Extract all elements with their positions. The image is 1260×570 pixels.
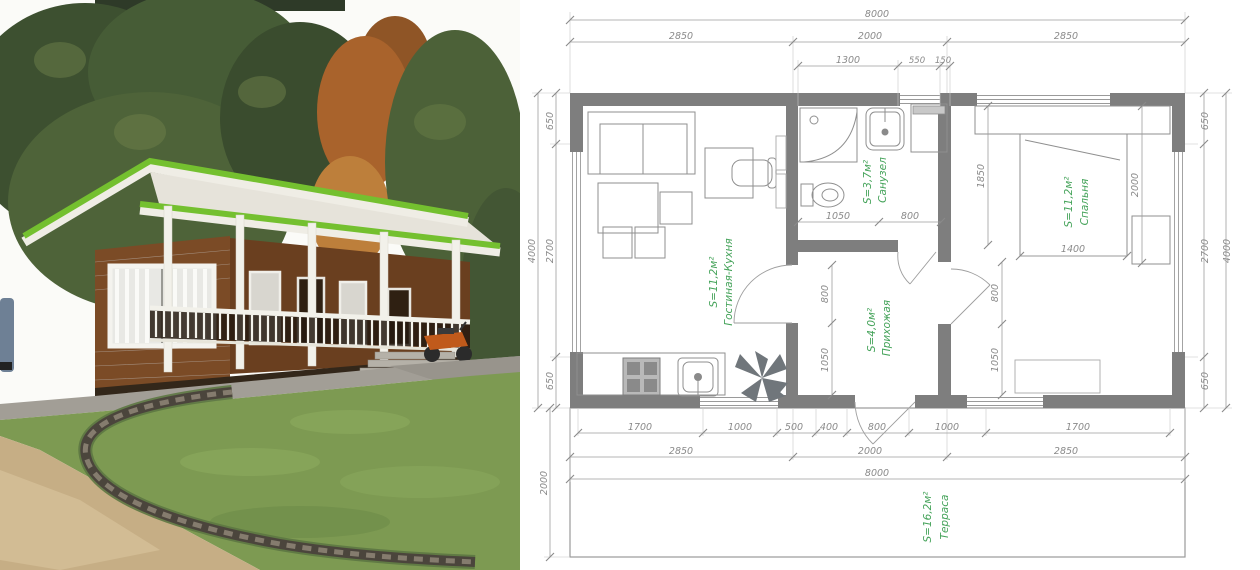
dim-top-detail-1300: 1300 [836, 55, 860, 66]
wall-shelf [776, 174, 786, 208]
window-bedroom-top [977, 96, 1110, 104]
toilet-bowl [812, 183, 844, 207]
room-label-hall-name: Прихожая [881, 300, 893, 356]
window-bottom-right [967, 398, 1043, 406]
room-label-bath-name: Санузел [877, 157, 889, 203]
room-label-bedroom-area: S=11,2м² [1063, 176, 1075, 228]
dim-bot-section-mid: 2000 [858, 446, 882, 457]
bed-headboard [975, 106, 1170, 134]
post [164, 206, 172, 372]
living-room-furniture [588, 112, 786, 258]
door-bath [898, 252, 936, 284]
room-label-terrace-area: S=16,2м² [922, 491, 934, 543]
post [236, 215, 244, 369]
foliage-highlight [34, 42, 86, 78]
room-label-bedroom-name: Спальня [1079, 179, 1091, 226]
room-label-hall-area: S=4,0м² [866, 307, 878, 352]
wheel [456, 346, 472, 362]
dim-terrace-depth: 2000 [539, 471, 550, 495]
dim-left-2700: 2700 [545, 239, 556, 263]
office-chair [732, 160, 772, 186]
window-right [1175, 152, 1183, 352]
plant [735, 351, 788, 402]
dim-right-650-bottom: 650 [1200, 372, 1211, 390]
kitchen-furniture [577, 351, 788, 402]
foliage-highlight [238, 76, 286, 108]
dim-bot-section-right: 2850 [1054, 446, 1078, 457]
dim-bot-1000-r: 1000 [935, 422, 959, 433]
wall-shelf [776, 136, 786, 170]
step [375, 352, 455, 359]
toilet-bowl-inner [822, 189, 838, 201]
toilet-tank [801, 184, 813, 206]
dim-top-section-right: 2850 [1054, 31, 1078, 42]
chair [635, 227, 665, 258]
dim-bot-1700-r: 1700 [1066, 422, 1090, 433]
dim-bot-800: 800 [868, 422, 886, 433]
room-label-bath-area: S=3,7м² [862, 159, 874, 204]
shower [800, 108, 857, 162]
kitchen-faucet [694, 373, 702, 381]
dim-bot-1700-l: 1700 [628, 422, 652, 433]
floor-plan-panel: 8000 2850 2000 2850 1300 550 150 650 270… [520, 0, 1260, 570]
door-living [734, 265, 792, 323]
dim-hall-right-wall: 1050 [990, 348, 1001, 372]
dim-right-2700: 2700 [1200, 239, 1211, 263]
walls [570, 93, 1185, 408]
burner [644, 379, 657, 392]
room-label-living-area: S=11,2м² [708, 256, 720, 308]
burner [627, 379, 640, 392]
parked-car [0, 298, 14, 372]
dim-bot-1000-l: 1000 [728, 422, 752, 433]
dim-left-650-top: 650 [545, 112, 556, 130]
car-body [0, 298, 14, 372]
window-kitchen-bottom [700, 398, 778, 406]
dim-hall-left-door: 800 [820, 285, 831, 303]
screenshot-root: 8000 2850 2000 2850 1300 550 150 650 270… [0, 0, 1260, 570]
blanket-fold [1025, 140, 1120, 160]
grass-highlight [290, 410, 410, 434]
dim-bed-2000: 2000 [1130, 173, 1141, 197]
house-photo-panel [0, 0, 520, 570]
dim-left-650-bottom: 650 [545, 372, 556, 390]
burner [644, 362, 657, 375]
chair [603, 227, 632, 258]
dim-right-650-top: 650 [1200, 112, 1211, 130]
dim-top-detail-150: 150 [935, 56, 951, 66]
side-table [660, 192, 692, 224]
dim-bot-500: 500 [785, 422, 803, 433]
dim-bot-section-left: 2850 [669, 446, 693, 457]
dim-top-total: 8000 [865, 9, 889, 20]
dim-bath-1050: 1050 [826, 211, 850, 222]
window-left [573, 152, 581, 352]
washing-machine-panel [913, 106, 945, 114]
burner [627, 362, 640, 375]
dim-hall-right-door: 800 [990, 284, 1001, 302]
foliage-highlight [114, 114, 166, 150]
dim-bed-1850: 1850 [976, 164, 987, 188]
bike-seat [438, 328, 454, 334]
dim-top-section-mid: 2000 [858, 31, 882, 42]
dim-bath-800: 800 [901, 211, 919, 222]
dim-top-detail-550: 550 [909, 56, 925, 66]
car-wheel [0, 362, 12, 370]
dim-bot-total: 8000 [865, 468, 889, 479]
dim-hall-left-wall: 1050 [820, 348, 831, 372]
table [598, 183, 658, 233]
door-bedroom [951, 269, 990, 324]
room-label-terrace-name: Терраса [939, 495, 951, 540]
shower-curve [804, 112, 857, 162]
grass-highlight [340, 466, 500, 498]
floor-plan: 8000 2850 2000 2850 1300 550 150 650 270… [520, 0, 1260, 570]
dim-right-overall: 4000 [1222, 239, 1233, 263]
dim-left-overall: 4000 [527, 239, 538, 263]
dim-top-section-left: 2850 [669, 31, 693, 42]
room-label-living-name: Гостиная-Кухня [723, 238, 735, 325]
dim-bed-1400: 1400 [1061, 244, 1085, 255]
wardrobe [1015, 360, 1100, 393]
nightstand [1132, 216, 1170, 264]
window-bath-top [900, 96, 940, 104]
house-photo [0, 0, 520, 570]
desk [705, 148, 753, 198]
sofa [588, 112, 695, 174]
dim-bot-400: 400 [820, 422, 838, 433]
foliage-highlight [414, 104, 466, 140]
shower-drain [810, 116, 818, 124]
bath-faucet [882, 129, 889, 136]
grass-highlight [180, 448, 320, 476]
